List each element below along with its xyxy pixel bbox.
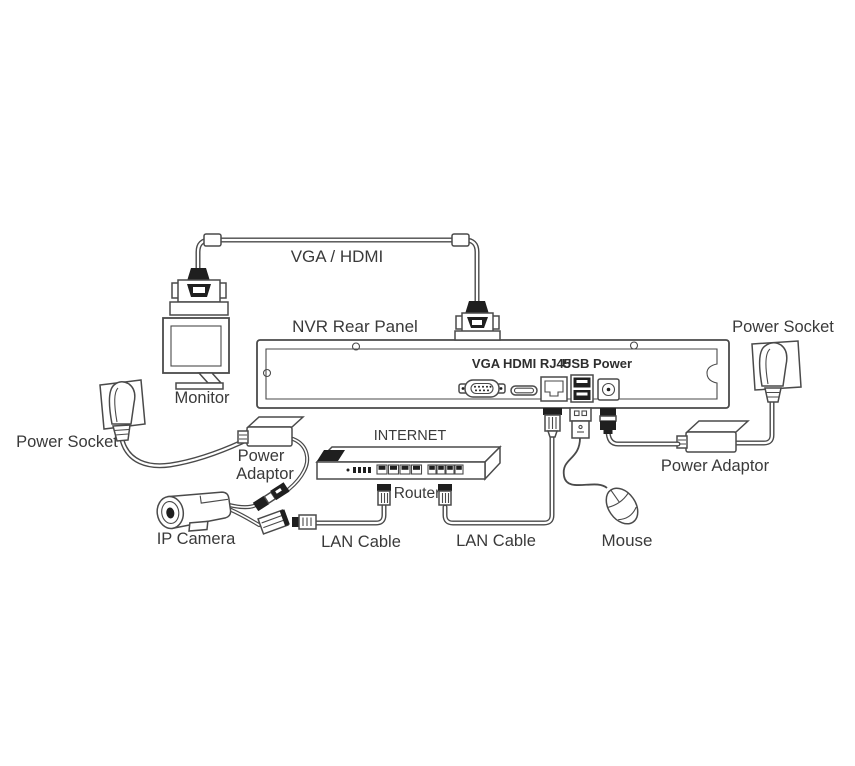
mouse [600, 482, 644, 529]
mouse-label: Mouse [601, 531, 652, 550]
dc-connector-pair-icon [253, 482, 290, 511]
cable-ferrite-left [204, 234, 221, 246]
usb-power-port-label: USB Power [562, 356, 632, 371]
power-socket-left-label: Power Socket [16, 433, 118, 451]
nvr-panel-label: NVR Rear Panel [292, 317, 418, 336]
vga-port-label: VGA [472, 356, 501, 371]
monitor [163, 318, 229, 389]
cable-ferrite-right [452, 234, 469, 246]
dc-power-port-icon [598, 379, 619, 400]
hdmi-port-icon [511, 386, 537, 395]
rj45-plug-nvr-icon [543, 408, 562, 437]
power-adaptor-right-label: Power Adaptor [661, 457, 770, 475]
power-adaptor-left-label-line1: Power [238, 447, 285, 465]
internet-label: INTERNET [374, 428, 447, 444]
hdmi-rj45-port-label: HDMI RJ45 [503, 356, 571, 371]
camera-pigtail [229, 505, 259, 525]
lan-cable-right-label: LAN Cable [456, 532, 536, 550]
ip-camera-label: IP Camera [157, 530, 236, 548]
power-adaptor-right [677, 421, 748, 452]
monitor-label: Monitor [174, 389, 230, 407]
vga-hdmi-cable-label: VGA / HDMI [291, 247, 384, 266]
router [317, 447, 500, 479]
rj45-port-icon [541, 377, 567, 401]
dc-plug-icon [600, 408, 678, 444]
rj45-plug-router2-icon [438, 484, 452, 505]
nvr-vga-connector-icon [455, 301, 500, 340]
power-socket-right-label: Power Socket [732, 318, 834, 336]
nvr-rear-panel [257, 340, 729, 408]
router-label: Router [394, 485, 441, 502]
power-socket-right [734, 341, 801, 443]
rj45-coupler-icon [258, 509, 290, 534]
usb-port-icon [571, 375, 593, 402]
nvr-connection-diagram: VGA / HDMI Monitor NVR Rear Panel VGA HD… [0, 0, 855, 766]
rj45-plug-router1-icon [316, 484, 391, 523]
vga-hdmi-cable [198, 234, 477, 303]
ip-camera [155, 488, 233, 536]
monitor-vga-connector-icon [170, 268, 228, 315]
lan-cable-left-label: LAN Cable [321, 533, 401, 551]
power-adaptor-left-label-line2: Adaptor [236, 465, 294, 483]
rj45-plug-camera-icon [292, 515, 316, 529]
